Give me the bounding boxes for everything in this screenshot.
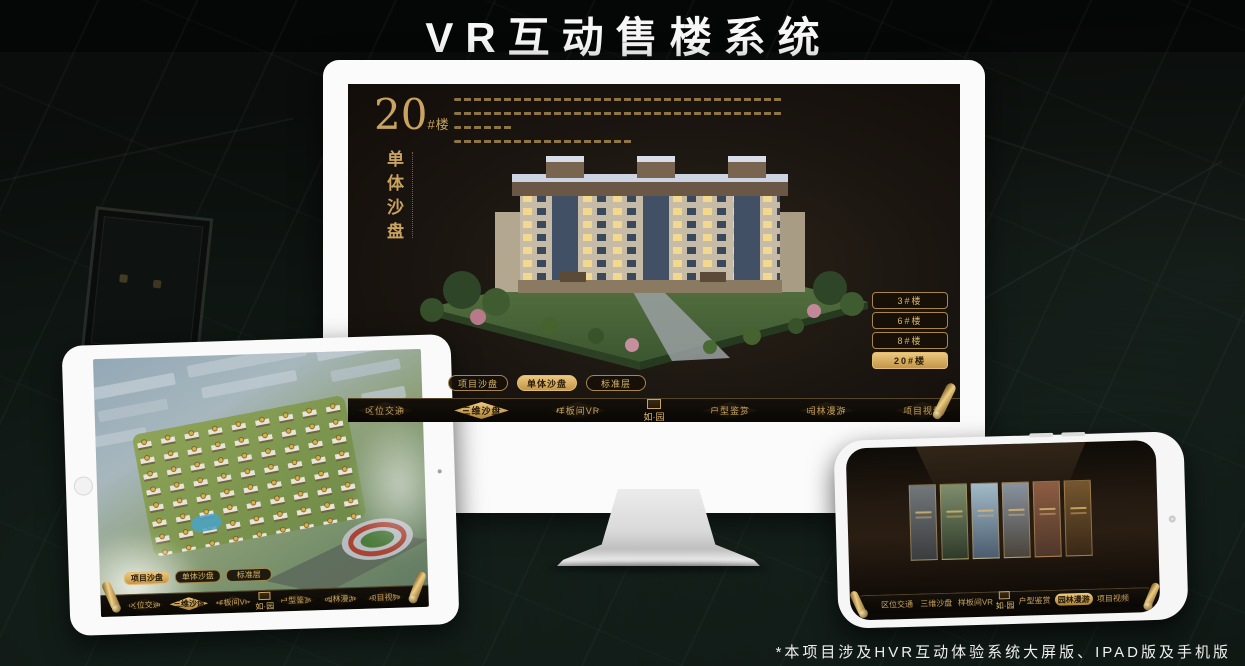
poster-canvas: VR互动售楼系统 20#楼 单体沙盘	[0, 0, 1245, 666]
tablet-device: 项目沙盘 单体沙盘 标准层 区位交通 三维沙盘 样板间VR 如·园 户型鉴赏 园…	[62, 334, 460, 636]
scene-panel[interactable]	[1002, 481, 1031, 558]
tablet-tab-standard-floor[interactable]: 标准层	[226, 568, 272, 582]
ruyuan-logo-text: 如·园	[644, 410, 665, 423]
background-plaque	[81, 206, 214, 364]
ruyuan-logo-text: 如·园	[255, 600, 274, 612]
scene-panel[interactable]	[1033, 481, 1062, 558]
floor-button-group: 3#楼 6#楼 8#楼 20#楼	[872, 292, 948, 369]
phone-volume-button[interactable]	[1029, 433, 1053, 438]
floor-button-6[interactable]: 6#楼	[872, 312, 948, 329]
scene-panel[interactable]	[940, 483, 969, 560]
nav-item-project-video[interactable]: 项目视频	[1094, 592, 1132, 605]
ruyuan-logo: 如·园	[995, 591, 1014, 612]
nav-item-garden-roam-active[interactable]: 园林漫游	[1055, 593, 1093, 606]
nav-item-unit-gallery[interactable]: 户型鉴赏	[274, 593, 318, 607]
tablet-camera-icon	[438, 469, 442, 473]
phone-camera-icon	[1169, 515, 1176, 522]
phone-volume-button[interactable]	[1061, 432, 1085, 437]
tablet-tab-project-sandbox-active[interactable]: 项目沙盘	[124, 571, 170, 585]
phone-nav-bar: 区位交通 三维沙盘 样板间VR 如·园 户型鉴赏 园林漫游 项目视频	[860, 587, 1150, 614]
tablet-home-button[interactable]	[74, 476, 94, 496]
nav-item-location-traffic[interactable]: 区位交通	[878, 598, 916, 611]
nav-item-showroom-vr[interactable]: 样板间VR	[211, 595, 255, 609]
scene-panel[interactable]	[971, 482, 1000, 559]
poster-footnote: *本项目涉及HVR互动体验系统大屏版、IPAD版及手机版	[776, 641, 1231, 662]
floor-button-20-active[interactable]: 20#楼	[872, 352, 948, 369]
tab-single-sandbox-active[interactable]: 单体沙盘	[517, 375, 577, 391]
tab-standard-floor[interactable]: 标准层	[586, 375, 646, 391]
tablet-screen: 项目沙盘 单体沙盘 标准层 区位交通 三维沙盘 样板间VR 如·园 户型鉴赏 园…	[93, 349, 429, 617]
monitor-nav-bar: 区位交通 三维沙盘 样板间VR 如·园 户型鉴赏 园林漫游 项目视频	[348, 398, 960, 422]
sandbox-tabs: 项目沙盘 单体沙盘 标准层	[448, 375, 646, 391]
ruyuan-seal-icon	[647, 399, 661, 409]
nav-item-showroom-vr[interactable]: 样板间VR	[956, 595, 994, 608]
ruyuan-logo-text: 如·园	[996, 600, 1015, 612]
nav-item-garden-roam[interactable]: 园林漫游	[318, 592, 362, 606]
building-number: 20	[374, 90, 427, 139]
building-heading: 20#楼	[374, 94, 450, 136]
building-unit: #楼	[427, 117, 449, 132]
scene-panel[interactable]	[1064, 480, 1093, 557]
monitor-base-shadow	[547, 564, 770, 572]
poster-title: VR互动售楼系统	[0, 4, 1245, 65]
tab-project-sandbox[interactable]: 项目沙盘	[448, 375, 508, 391]
nav-item-unit-gallery[interactable]: 户型鉴赏	[699, 402, 761, 419]
nav-item-3d-sandbox-active[interactable]: 三维沙盘	[167, 597, 211, 611]
ruyuan-logo: 如·园	[255, 591, 274, 612]
building-model-viewport[interactable]	[400, 140, 880, 380]
phone-device: 区位交通 三维沙盘 样板间VR 如·园 户型鉴赏 园林漫游 项目视频	[833, 431, 1188, 629]
nav-item-garden-roam[interactable]: 园林漫游	[796, 402, 858, 419]
nav-item-location-traffic[interactable]: 区位交通	[123, 598, 167, 612]
building-model-render	[400, 140, 880, 380]
ruyuan-seal-icon	[258, 591, 270, 599]
tablet-tab-single-sandbox[interactable]: 单体沙盘	[175, 569, 221, 583]
ruyuan-seal-icon	[999, 591, 1010, 599]
nav-item-showroom-vr[interactable]: 样板间VR	[547, 402, 609, 419]
nav-item-3d-sandbox[interactable]: 三维沙盘	[917, 597, 955, 610]
nav-item-location-traffic[interactable]: 区位交通	[354, 402, 416, 419]
nav-item-3d-sandbox-active[interactable]: 三维沙盘	[451, 402, 513, 419]
floor-button-3[interactable]: 3#楼	[872, 292, 948, 309]
nav-item-unit-gallery[interactable]: 户型鉴赏	[1015, 594, 1053, 607]
nav-item-project-video[interactable]: 项目视频	[362, 590, 406, 604]
ruyuan-logo: 如·园	[644, 399, 665, 423]
phone-screen: 区位交通 三维沙盘 样板间VR 如·园 户型鉴赏 园林漫游 项目视频	[846, 440, 1161, 621]
scene-panel-gallery	[909, 480, 1093, 561]
floor-button-8[interactable]: 8#楼	[872, 332, 948, 349]
scene-panel[interactable]	[909, 484, 938, 561]
